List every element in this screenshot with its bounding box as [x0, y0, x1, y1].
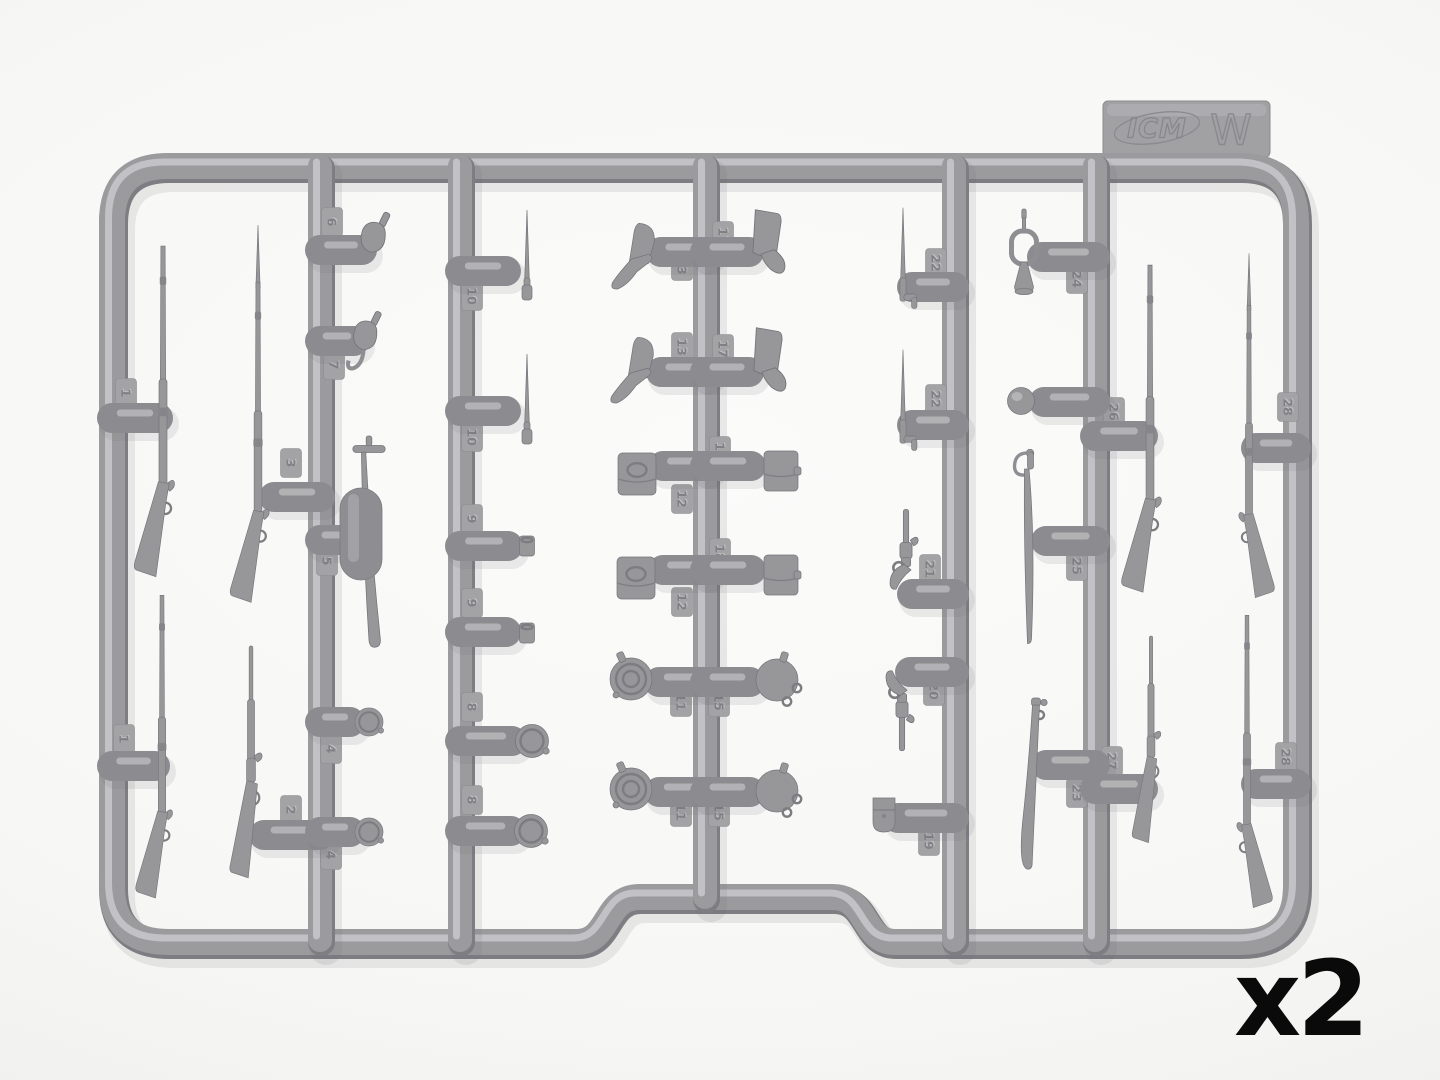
part-cartridge-box-US: [617, 557, 655, 599]
svg-text:6: 6: [325, 218, 340, 227]
part-number-tag: 66: [322, 208, 343, 237]
part-number-tag: 99: [462, 505, 483, 534]
sprue-gate: [1042, 252, 1099, 263]
part-revolver: [890, 509, 918, 589]
part-spike-bayonet: [522, 210, 532, 300]
part-round-knob: [1008, 388, 1035, 415]
sprue-gate: [705, 367, 753, 378]
sprue-gate: [1095, 431, 1147, 442]
svg-text:22: 22: [929, 254, 944, 271]
sprue-gate: [460, 541, 512, 552]
sprue-gate: [1256, 779, 1300, 790]
sprue-gate: [460, 736, 516, 747]
sprue-gate: [274, 492, 324, 503]
part-canteen: [610, 761, 652, 810]
part-number-tag: 11: [114, 725, 135, 754]
part-runner-capsule: [340, 488, 382, 580]
svg-text:3: 3: [284, 459, 299, 468]
sprue-gate: [912, 420, 958, 431]
sprue-letter: W: [1210, 106, 1252, 155]
part-cap-pouch: [873, 798, 895, 832]
sprue-gate: [112, 413, 162, 424]
sprue-gate: [460, 406, 510, 417]
part-number-tag: 33: [281, 449, 302, 478]
part-musket-with-bayonet: [230, 225, 269, 602]
part-cup: [520, 536, 535, 556]
part-cup: [520, 623, 535, 643]
sprue-gate: [320, 336, 358, 347]
part-cavalry-saber: [1015, 449, 1034, 643]
sprue-gate: [460, 826, 515, 837]
sprue-gate: [1095, 784, 1147, 795]
part-rifle-musket: [1237, 615, 1273, 907]
sprue-gate: [912, 589, 958, 600]
part-cartridge-box: [764, 451, 801, 491]
part-spike-bayonet: [522, 354, 532, 444]
sprue-gate: [320, 717, 354, 728]
part-number-tag: 88: [462, 786, 483, 815]
svg-text:9: 9: [465, 515, 480, 524]
sprue-gate: [912, 282, 958, 293]
sprue-gate: [898, 813, 958, 824]
part-powder-flask: [361, 211, 391, 252]
svg-text:8: 8: [465, 703, 480, 712]
svg-text:22: 22: [929, 390, 944, 407]
sprue-gate: [112, 761, 159, 772]
brand-logo-text: ICM: [1127, 114, 1187, 145]
part-number-tag: 99: [462, 589, 483, 618]
svg-text:2: 2: [284, 806, 299, 815]
sprue-gate: [910, 667, 958, 678]
svg-text:17: 17: [716, 340, 731, 357]
svg-text:21: 21: [923, 560, 938, 577]
part-canteen-half: [516, 725, 550, 758]
svg-text:28: 28: [1281, 398, 1296, 415]
part-number-tag: 2222: [926, 385, 947, 414]
sprue-gate: [1046, 536, 1099, 547]
svg-text:28: 28: [1279, 748, 1294, 765]
sprue-gate: [705, 677, 754, 688]
svg-text:9: 9: [465, 599, 480, 608]
svg-text:4: 4: [324, 745, 339, 754]
sprue-gate: [705, 461, 755, 472]
part-canteen-half: [355, 818, 384, 846]
sprue-gate: [705, 787, 754, 798]
sprue-gate: [1256, 443, 1300, 454]
part-cartridge-box-US: [618, 453, 656, 495]
svg-text:12: 12: [675, 490, 690, 507]
part-slouch-hat: [612, 223, 655, 289]
svg-text:1: 1: [117, 735, 132, 744]
svg-text:1: 1: [119, 389, 134, 398]
sprue-gate: [1046, 760, 1099, 771]
part-slouch-hat: [611, 337, 654, 403]
sprue-gate: [1044, 397, 1099, 408]
part-canteen-half: [355, 708, 384, 736]
svg-text:8: 8: [465, 796, 480, 805]
sprue-photo: ICM W 1111332266775544441010101099998888…: [0, 0, 1440, 1080]
part-canteen: [610, 651, 652, 700]
sprue-gate: [320, 827, 354, 838]
part-number-tag: 2828: [1278, 393, 1299, 422]
part-carbine: [1132, 636, 1161, 843]
part-canteen-half: [515, 815, 549, 848]
svg-text:12: 12: [675, 593, 690, 610]
sprue-gate: [705, 247, 753, 258]
quantity-label: x2: [1234, 942, 1424, 1056]
part-musket-with-bayonet: [1239, 253, 1275, 597]
svg-text:13: 13: [675, 338, 690, 355]
brand-tab: ICM W: [1103, 101, 1270, 161]
sprue-gate: [460, 627, 510, 638]
part-number-tag: 88: [462, 693, 483, 722]
sprue-gate: [705, 565, 755, 576]
sprue-photo-svg: ICM W 1111332266775544441010101099998888…: [0, 0, 1440, 1080]
sprue-gate: [320, 245, 366, 256]
sprue-gate: [460, 266, 510, 277]
part-cartridge-box: [764, 555, 801, 595]
part-number-tag: 2828: [1276, 743, 1297, 772]
part-rifle-musket: [136, 595, 173, 898]
